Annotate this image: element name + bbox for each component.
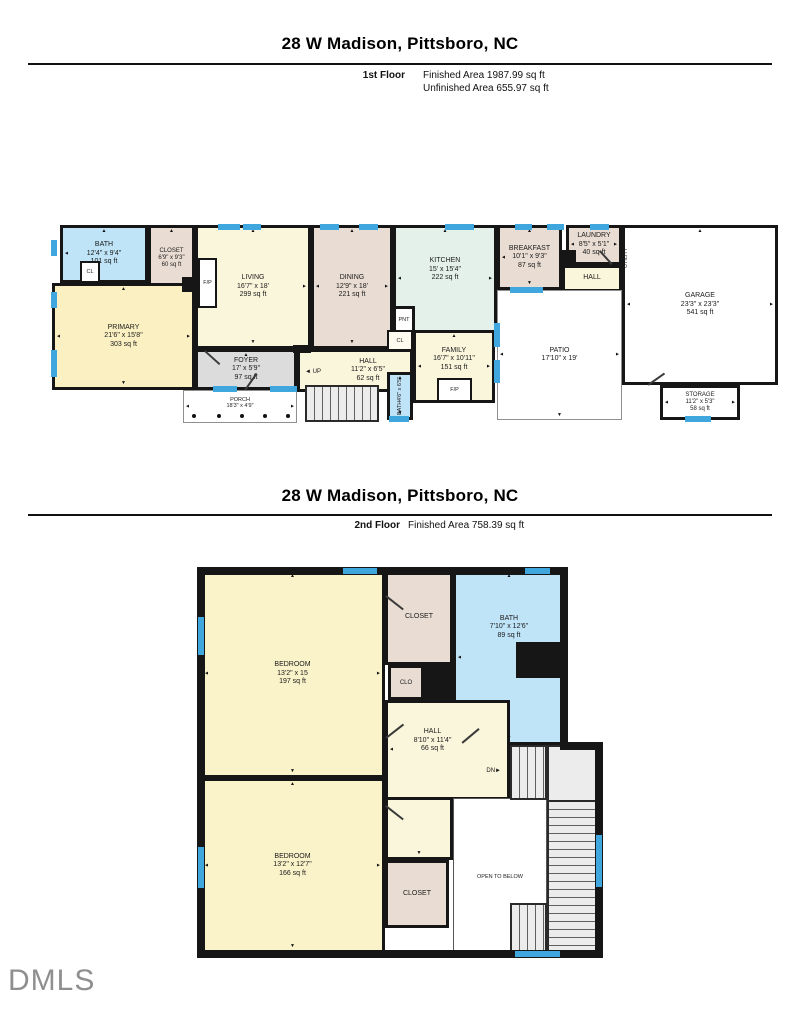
window bbox=[547, 224, 564, 230]
arrow-right-icon: ► bbox=[495, 768, 501, 774]
dn-text: DN bbox=[486, 768, 495, 774]
dimension-arrow-icon: ▼ bbox=[507, 736, 512, 741]
room-dims: 17'10" x 19' bbox=[542, 355, 578, 364]
room-cl-1: CL bbox=[80, 261, 100, 283]
dimension-arrow-icon: ► bbox=[488, 277, 493, 282]
room-pantry: PNT bbox=[393, 306, 415, 333]
room-label: LIVING bbox=[242, 274, 265, 283]
room-hall-2: HALL8'10" x 11'4"66 sq ft DN► ◄ bbox=[385, 700, 510, 800]
room-dims: 11'2" x 6'5" bbox=[351, 366, 385, 375]
window bbox=[515, 224, 532, 230]
window bbox=[515, 951, 560, 957]
dimension-arrow-icon: ◄ bbox=[185, 404, 190, 409]
room-dims: 13'2" x 15 bbox=[277, 670, 308, 679]
room-cl-2: CL bbox=[387, 330, 413, 351]
room-area: 303 sq ft bbox=[110, 341, 137, 350]
window bbox=[213, 386, 237, 392]
window bbox=[389, 416, 409, 422]
room-label: HALL bbox=[359, 358, 377, 367]
dimension-arrow-icon: ◄ bbox=[570, 243, 575, 248]
room-area: 541 sq ft bbox=[687, 309, 714, 318]
fireplace-living: F/P bbox=[198, 258, 217, 308]
dimension-arrow-icon: ► bbox=[769, 303, 774, 308]
room-label: CLO bbox=[400, 680, 412, 686]
room-bedroom-1: BEDROOM13'2" x 15197 sq ft ▲▼◄► bbox=[200, 570, 385, 778]
room-label: BATH bbox=[500, 615, 518, 624]
floor2-label: 2nd Floor bbox=[295, 520, 400, 531]
window bbox=[320, 224, 339, 230]
dimension-arrow-icon: ▼ bbox=[417, 851, 422, 856]
room-area: 66 sq ft bbox=[421, 745, 444, 754]
room-label: BREAKFAST bbox=[509, 245, 550, 254]
dimension-arrow-icon: ▲ bbox=[398, 376, 403, 381]
dimension-arrow-icon: ◄ bbox=[457, 655, 462, 660]
room-area: 166 sq ft bbox=[279, 870, 306, 879]
room-dims: 12'9" x 18' bbox=[336, 283, 368, 292]
room-area: 89 sq ft bbox=[498, 632, 521, 641]
window bbox=[51, 292, 57, 308]
floor1-area-summary: Finished Area 1987.99 sq ft Unfinished A… bbox=[423, 69, 549, 95]
fireplace-label: F/P bbox=[450, 387, 459, 393]
room-dims: 10'1" x 9'3" bbox=[512, 253, 547, 262]
room-label: PRIMARY bbox=[108, 324, 140, 333]
stairs-down-label: DN► bbox=[486, 768, 501, 774]
room-bath-small: BATH4'6" x 6'5" ▲▼ bbox=[387, 372, 413, 420]
wall-segment bbox=[293, 345, 311, 353]
room-label: FOYER bbox=[234, 357, 258, 366]
room-label: CLOSET bbox=[403, 890, 431, 899]
room-area: 221 sq ft bbox=[339, 291, 366, 300]
wall-segment bbox=[516, 642, 562, 678]
window bbox=[270, 386, 297, 392]
room-dining: DINING12'9" x 18'221 sq ft ▲▼◄► bbox=[311, 225, 393, 349]
dimension-arrow-icon: ▼ bbox=[557, 413, 562, 418]
dmls-logo: DMLS bbox=[8, 964, 95, 998]
room-storage: STORAGE11'2" x 5'3"58 sq ft ◄► bbox=[660, 385, 740, 420]
divider-line bbox=[28, 63, 772, 65]
room-label: PATIO bbox=[550, 347, 570, 356]
porch-column bbox=[286, 414, 290, 418]
room-area: 197 sq ft bbox=[279, 678, 306, 687]
room-label: FAMILY bbox=[442, 347, 466, 356]
window bbox=[243, 224, 261, 230]
room-closet-top: CLOSET bbox=[385, 570, 453, 665]
porch-column bbox=[217, 414, 221, 418]
page-title-floor1: 28 W Madison, Pittsboro, NC bbox=[0, 34, 800, 54]
room-hall-2-extension: ▼ bbox=[385, 797, 453, 860]
room-dims: 16'7" x 18' bbox=[237, 283, 269, 292]
room-primary: PRIMARY21'6" x 15'8"303 sq ft ▲▼◄► bbox=[52, 283, 195, 390]
dimension-arrow-icon: ► bbox=[302, 285, 307, 290]
room-dims: 18'3" x 4'9" bbox=[226, 403, 253, 409]
room-porch: PORCH18'3" x 4'9" ◄► bbox=[183, 390, 297, 423]
dimension-arrow-icon: ◄ bbox=[389, 748, 394, 753]
floor2-area-summary: Finished Area 758.39 sq ft bbox=[408, 519, 524, 532]
room-dims: 21'6" x 15'8" bbox=[104, 332, 142, 341]
dimension-arrow-icon: ▲ bbox=[121, 287, 126, 292]
dimension-arrow-icon: ▼ bbox=[251, 340, 256, 345]
page-title-floor2: 28 W Madison, Pittsboro, NC bbox=[0, 486, 800, 506]
dimension-arrow-icon: ▲ bbox=[350, 229, 355, 234]
dimension-arrow-icon: ◄ bbox=[501, 255, 506, 260]
porch-column bbox=[240, 414, 244, 418]
dimension-arrow-icon: ► bbox=[731, 400, 736, 405]
room-closet-bottom: CLOSET bbox=[385, 860, 449, 928]
wall-segment bbox=[560, 742, 603, 750]
dimension-arrow-icon: ▲ bbox=[452, 334, 457, 339]
room-label: LAUNDRY bbox=[577, 232, 610, 241]
room-breakfast: BREAKFAST10'1" x 9'3"87 sq ft ▲◄▼ bbox=[497, 225, 562, 290]
room-dims: 8'10" x 11'4" bbox=[414, 737, 452, 746]
wall-segment bbox=[182, 277, 195, 292]
dimension-arrow-icon: ▲ bbox=[290, 782, 295, 787]
stairs-upper-flight bbox=[510, 745, 547, 800]
porch-column bbox=[263, 414, 267, 418]
dimension-arrow-icon: ► bbox=[486, 364, 491, 369]
window bbox=[445, 224, 474, 230]
dimension-arrow-icon: ► bbox=[384, 285, 389, 290]
dimension-arrow-icon: ► bbox=[186, 334, 191, 339]
room-dims: 11'2" x 5'3" bbox=[685, 399, 714, 406]
arrow-left-icon: ◄ bbox=[305, 369, 311, 375]
room-dims: 13'2" x 12'7" bbox=[273, 861, 311, 870]
room-area: 222 sq ft bbox=[432, 274, 459, 283]
room-dims: 7'10" x 12'6" bbox=[490, 623, 528, 632]
porch-column bbox=[192, 414, 196, 418]
wall-segment bbox=[424, 662, 453, 703]
room-label: BATH bbox=[95, 241, 113, 250]
room-area: 299 sq ft bbox=[240, 291, 267, 300]
room-label: DINING bbox=[340, 274, 365, 283]
room-bedroom-2: BEDROOM13'2" x 12'7"166 sq ft ▲▼◄► bbox=[200, 778, 385, 953]
dimension-arrow-icon: ◄ bbox=[315, 285, 320, 290]
window bbox=[198, 617, 204, 655]
room-patio: PATIO17'10" x 19' ◄►▼ bbox=[497, 290, 622, 420]
open-to-below: OPEN TO BELOW bbox=[453, 798, 547, 955]
dimension-arrow-icon: ◄ bbox=[417, 364, 422, 369]
window bbox=[494, 323, 500, 347]
window bbox=[590, 224, 609, 230]
room-label: PNT bbox=[399, 317, 410, 323]
room-area: 87 sq ft bbox=[518, 262, 541, 271]
room-label: CL bbox=[396, 338, 403, 344]
room-area: 58 sq ft bbox=[690, 406, 710, 413]
stairs-first-floor bbox=[305, 385, 379, 422]
room-label: HALL bbox=[583, 274, 601, 283]
room-dims: 6'9" x 9'3" bbox=[158, 255, 184, 262]
window bbox=[685, 416, 711, 422]
dimension-arrow-icon: ▼ bbox=[350, 340, 355, 345]
dimension-arrow-icon: ◄ bbox=[64, 252, 69, 257]
room-label: GARAGE bbox=[685, 292, 715, 301]
divider-line bbox=[28, 514, 772, 516]
window bbox=[359, 224, 378, 230]
room-label: CLOSET bbox=[405, 613, 433, 622]
dimension-arrow-icon: ▼ bbox=[121, 381, 126, 386]
floor1-label: 1st Floor bbox=[300, 70, 405, 81]
room-dims: 16'7" x 10'11" bbox=[433, 355, 475, 364]
room-hall-right: HALL bbox=[562, 265, 622, 292]
stairs-right-flight bbox=[547, 800, 597, 953]
window bbox=[218, 224, 240, 230]
dimension-arrow-icon: ▲ bbox=[169, 229, 174, 234]
room-area: 60 sq ft bbox=[162, 262, 182, 269]
dimension-arrow-icon: ► bbox=[290, 404, 295, 409]
window bbox=[525, 568, 550, 574]
dimension-arrow-icon: ► bbox=[613, 243, 618, 248]
dimension-arrow-icon: ▼ bbox=[290, 944, 295, 949]
wall-segment bbox=[560, 250, 576, 266]
room-clo: CLO bbox=[388, 665, 424, 700]
window bbox=[343, 568, 377, 574]
room-label: CL bbox=[86, 269, 93, 275]
dimension-arrow-icon: ◄ bbox=[664, 400, 669, 405]
floor1-finished-area: Finished Area 1987.99 sq ft bbox=[423, 69, 549, 82]
room-garage: GARAGE23'3" x 23'3"541 sq ft ▲◄► bbox=[622, 225, 778, 385]
window bbox=[596, 835, 602, 887]
window bbox=[51, 350, 57, 377]
window bbox=[198, 847, 204, 888]
utility-label: UTILITY bbox=[623, 228, 629, 268]
dimension-arrow-icon: ► bbox=[376, 863, 381, 868]
room-dims: 8'5" x 5'1" bbox=[579, 241, 610, 250]
dimension-arrow-icon: ▼ bbox=[290, 769, 295, 774]
floor2-finished-area: Finished Area 758.39 sq ft bbox=[408, 519, 524, 532]
floor1-unfinished-area: Unfinished Area 655.97 sq ft bbox=[423, 82, 549, 95]
room-dims: 15' x 15'4" bbox=[429, 266, 461, 275]
room-label: BEDROOM bbox=[274, 661, 310, 670]
room-dims: 23'3" x 23'3" bbox=[681, 301, 719, 310]
stairs-landing bbox=[547, 745, 597, 802]
wall-segment bbox=[560, 567, 568, 745]
dimension-arrow-icon: ► bbox=[376, 672, 381, 677]
window bbox=[51, 240, 57, 256]
dimension-arrow-icon: ▼ bbox=[527, 281, 532, 286]
room-dims: 12'4" x 9'4" bbox=[87, 250, 122, 259]
dimension-arrow-icon: ► bbox=[615, 353, 620, 358]
dimension-arrow-icon: ▲ bbox=[698, 229, 703, 234]
room-bath-1: BATH12'4" x 9'4"101 sq ft ▲◄ bbox=[60, 225, 148, 283]
up-text: UP bbox=[313, 369, 321, 375]
room-label: CLOSET bbox=[159, 248, 183, 255]
room-area: 151 sq ft bbox=[441, 364, 468, 373]
dimension-arrow-icon: ▲ bbox=[102, 229, 107, 234]
room-label: OPEN TO BELOW bbox=[477, 874, 523, 880]
dimension-arrow-icon: ◄ bbox=[397, 277, 402, 282]
window bbox=[510, 287, 543, 293]
fireplace-family: F/P bbox=[437, 378, 472, 402]
room-label: HALL bbox=[424, 728, 442, 737]
wall-segment bbox=[197, 567, 565, 575]
stairs-up-label: ◄ UP bbox=[305, 369, 321, 375]
dimension-arrow-icon: ▲ bbox=[244, 353, 249, 358]
room-area: 62 sq ft bbox=[357, 375, 380, 384]
window bbox=[494, 360, 500, 383]
dimension-arrow-icon: ◄ bbox=[499, 353, 504, 358]
room-label: STORAGE bbox=[685, 392, 714, 399]
dimension-arrow-icon: ◄ bbox=[626, 303, 631, 308]
fireplace-label: F/P bbox=[203, 280, 212, 286]
dimension-arrow-icon: ◄ bbox=[56, 334, 61, 339]
room-label: KITCHEN bbox=[430, 257, 461, 266]
room-label: BEDROOM bbox=[274, 853, 310, 862]
